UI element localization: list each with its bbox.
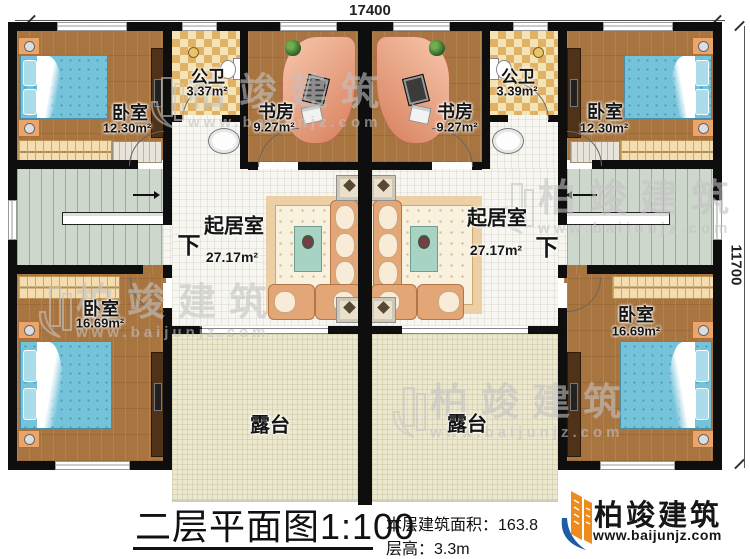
floor-area-info: 本层建筑面积：163.8 xyxy=(386,511,538,535)
plan-title: 二层平面图1:100 xyxy=(135,498,415,550)
floor-height-label: 层高： xyxy=(386,541,434,558)
stairs-down-label: 下 xyxy=(536,228,559,262)
room-area: 27.17m² xyxy=(206,249,258,265)
wall xyxy=(163,265,172,278)
wall xyxy=(8,22,17,470)
nightstand xyxy=(692,37,714,55)
wall xyxy=(528,326,558,334)
stair-direction-arrow xyxy=(573,194,597,196)
wall xyxy=(163,308,172,461)
dimension-line-top xyxy=(15,20,725,21)
bed xyxy=(620,341,712,429)
coffee-table xyxy=(294,226,322,272)
room-area: 12.30m² xyxy=(103,121,151,136)
dimension-top-label: 17400 xyxy=(349,2,391,19)
nightstand xyxy=(18,430,40,448)
wall xyxy=(298,162,358,170)
sink xyxy=(208,128,240,154)
shower-fixture xyxy=(533,47,544,58)
wall xyxy=(222,115,240,122)
company-logo-icon xyxy=(556,488,594,554)
stairs-down-label: 下 xyxy=(178,226,201,260)
wall xyxy=(163,169,172,225)
sofa xyxy=(373,200,402,290)
wall xyxy=(558,22,567,169)
room-label: 露台 xyxy=(250,409,290,438)
wall xyxy=(328,326,358,334)
window xyxy=(280,22,337,31)
terrace-sliding-door xyxy=(402,328,528,334)
floor-plan-canvas: 17400 11700 柏竣建筑 www.baijunjz.com 柏竣建筑 w… xyxy=(0,0,750,559)
bed xyxy=(624,55,712,119)
stair-rail xyxy=(62,212,166,225)
opening-right xyxy=(558,225,567,265)
wall xyxy=(548,115,558,122)
stair-rail xyxy=(566,212,670,225)
wall xyxy=(592,160,722,169)
window xyxy=(55,461,130,470)
side-table xyxy=(370,297,396,323)
room-label: 起居室 xyxy=(204,210,264,239)
wall xyxy=(372,326,402,334)
room-label: 露台 xyxy=(447,408,487,437)
nightstand xyxy=(18,119,40,137)
room-area: 12.30m² xyxy=(580,121,628,136)
room-area: 9.27m² xyxy=(253,120,294,135)
window xyxy=(182,22,217,31)
side-table xyxy=(370,175,396,201)
opening-left xyxy=(163,225,172,265)
wall xyxy=(8,265,143,274)
room-area: 27.17m² xyxy=(470,242,522,258)
tv-cabinet xyxy=(567,352,581,457)
room-area: 3.37m² xyxy=(186,84,227,99)
plan-title-text: 二层平面图 xyxy=(135,506,320,547)
dimension-right-label: 11700 xyxy=(728,245,745,286)
window xyxy=(713,200,722,240)
wall xyxy=(472,162,482,170)
nightstand xyxy=(692,430,714,448)
window xyxy=(600,461,675,470)
company-logo-website: www.baijunjz.com xyxy=(593,527,722,543)
floor-height-value: 3.3m xyxy=(434,541,470,558)
window xyxy=(513,22,548,31)
floor-area-label: 本层建筑面积： xyxy=(386,517,498,534)
wall xyxy=(172,326,202,334)
wall xyxy=(240,22,248,169)
wall xyxy=(248,162,258,170)
nightstand xyxy=(692,119,714,137)
nightstand xyxy=(18,37,40,55)
room-area: 16.69m² xyxy=(76,316,124,331)
plant xyxy=(285,40,301,56)
wall-party xyxy=(358,22,372,505)
wall xyxy=(587,265,722,274)
window xyxy=(8,200,17,240)
wall xyxy=(8,160,138,169)
wall xyxy=(482,22,490,169)
bed xyxy=(20,341,112,429)
nightstand xyxy=(18,321,40,339)
sofa xyxy=(330,200,359,290)
armchair xyxy=(268,284,315,320)
window xyxy=(393,22,450,31)
wall xyxy=(558,265,567,278)
coffee-table xyxy=(410,226,438,272)
stair-direction-arrow xyxy=(133,194,157,196)
terrace-sliding-door xyxy=(202,328,328,334)
title-underline xyxy=(133,547,373,550)
room-area: 3.39m² xyxy=(496,84,537,99)
room-label: 起居室 xyxy=(467,202,527,231)
sink xyxy=(492,128,524,154)
wall xyxy=(163,22,172,169)
wall xyxy=(490,115,508,122)
wall xyxy=(372,162,432,170)
armchair xyxy=(417,284,464,320)
room-area: 16.69m² xyxy=(612,324,660,339)
plant xyxy=(429,40,445,56)
wall xyxy=(172,115,182,122)
wall xyxy=(558,169,567,225)
shower-fixture xyxy=(188,47,199,58)
floor-area-value: 163.8 xyxy=(498,517,538,534)
floor-height-info: 层高：3.3m xyxy=(386,535,470,559)
window xyxy=(57,22,127,31)
wall xyxy=(713,22,722,470)
wall xyxy=(558,308,567,461)
bed xyxy=(20,55,108,119)
room-area: 9.27m² xyxy=(436,120,477,135)
nightstand xyxy=(692,321,714,339)
window xyxy=(603,22,673,31)
wardrobe xyxy=(612,276,714,299)
